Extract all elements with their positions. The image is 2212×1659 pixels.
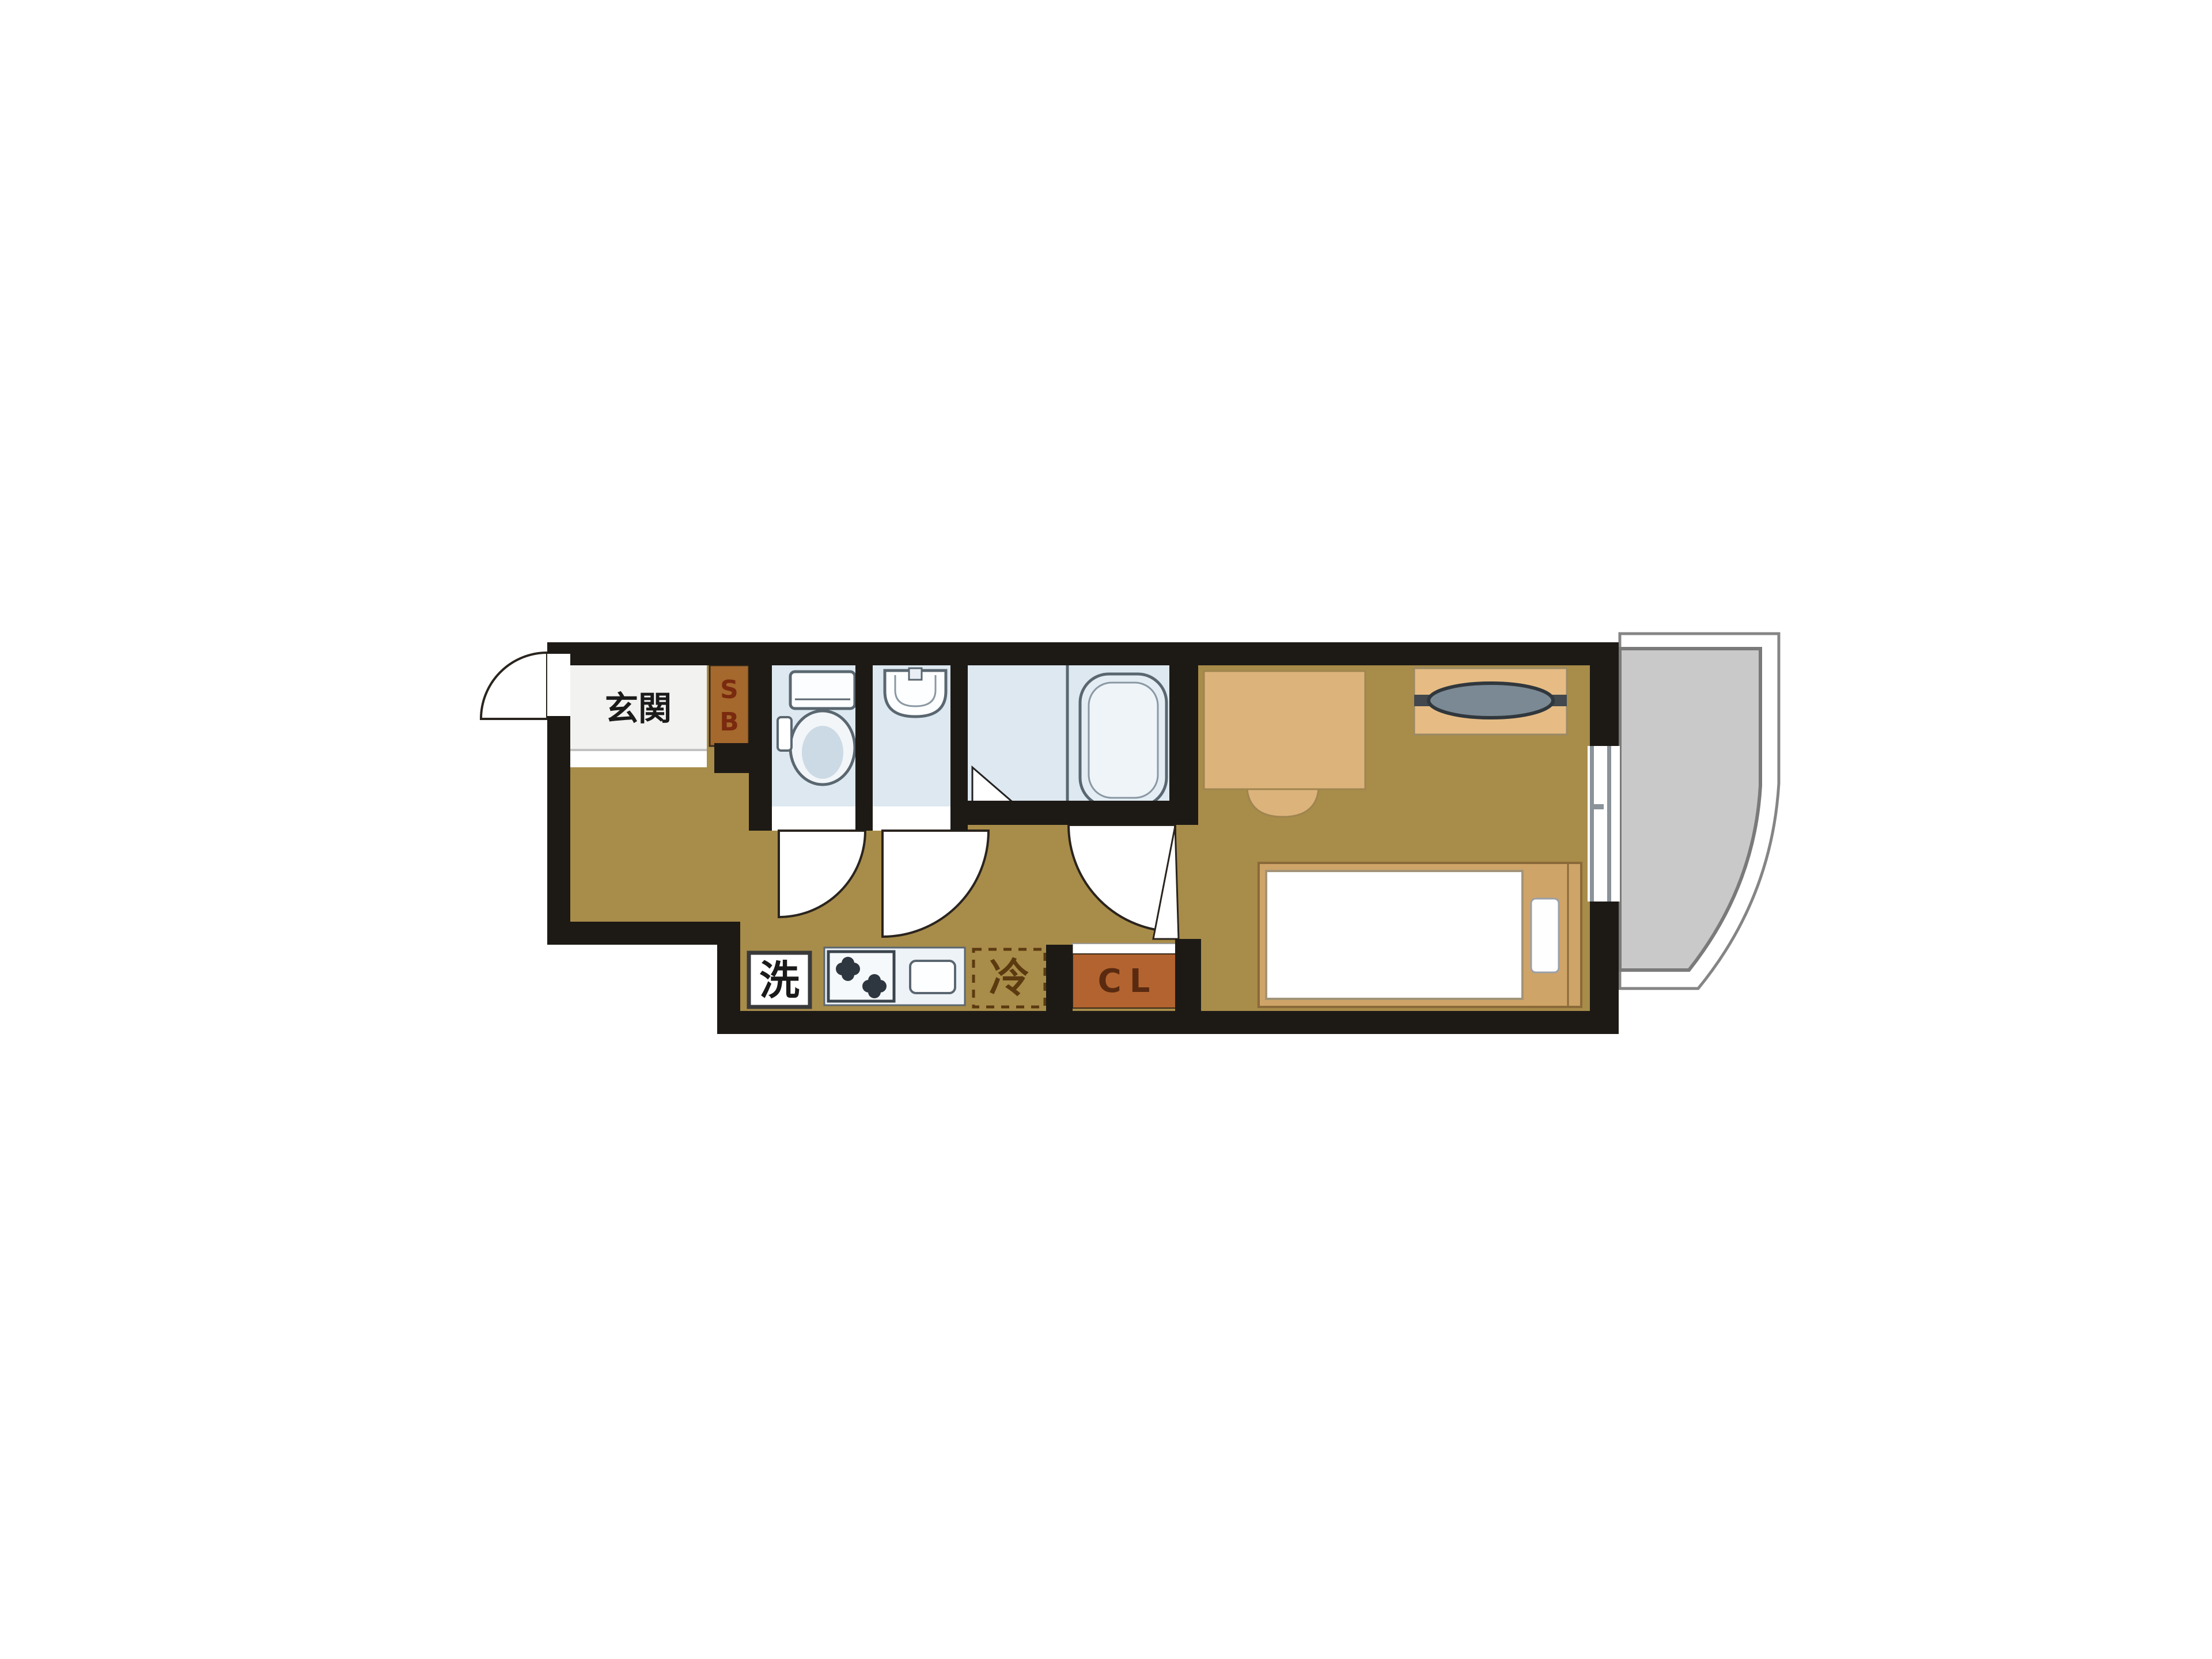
closet-track: [1073, 944, 1176, 954]
entrance-door-opening: [547, 654, 570, 716]
desk: [1204, 671, 1365, 789]
wall-hall-bottom: [547, 922, 740, 945]
wall-top: [547, 642, 1619, 665]
closet-label: CL: [1098, 963, 1158, 1000]
floor-plan-drawing: 玄関 S B 洗 冷 CL: [0, 0, 2212, 1659]
entrance-step: [570, 750, 707, 767]
wall-right-top: [1590, 642, 1619, 746]
wall-bath-bottom: [968, 801, 1169, 825]
washbasin-tap: [909, 668, 922, 680]
toilet-door-sill: [772, 806, 855, 831]
counter-shelf-lens: [1429, 683, 1553, 718]
floor-plan-page: 玄関 S B 洗 冷 CL: [0, 0, 2212, 1659]
sink-door-sill: [873, 806, 950, 831]
bed-mattress: [1266, 871, 1522, 999]
wall-toilet-sink-divider: [855, 665, 873, 831]
wall-sink-bath-divider: [950, 665, 968, 831]
entrance-label: 玄関: [605, 689, 672, 728]
wall-closet-right: [1175, 939, 1201, 1034]
shoe-box-label-b: B: [719, 707, 739, 737]
toilet-bowl-inner: [802, 726, 843, 779]
door-arc-entrance: [481, 653, 547, 719]
bed-pillow: [1531, 899, 1559, 972]
balcony-window-frame-inner: [1590, 746, 1594, 902]
shoe-box-label-s: S: [720, 675, 738, 704]
bathtub-inner: [1089, 683, 1158, 798]
balcony-window-frame-outer: [1607, 746, 1611, 902]
stove: [828, 952, 894, 1001]
wall-right-bottom: [1590, 902, 1619, 1034]
wall-bath-right: [1169, 665, 1198, 825]
toilet-tank: [790, 672, 855, 709]
wall-genkan-corner: [714, 743, 772, 773]
wall-bottom: [717, 1011, 1619, 1034]
kitchen-sink: [910, 961, 955, 993]
refrigerator-label: 冷: [989, 955, 1029, 1002]
toilet-handle: [778, 717, 791, 751]
washer-label: 洗: [759, 957, 800, 1004]
balcony-window-sash-tick: [1590, 804, 1604, 809]
wall-fridge-closet: [1046, 945, 1073, 1034]
